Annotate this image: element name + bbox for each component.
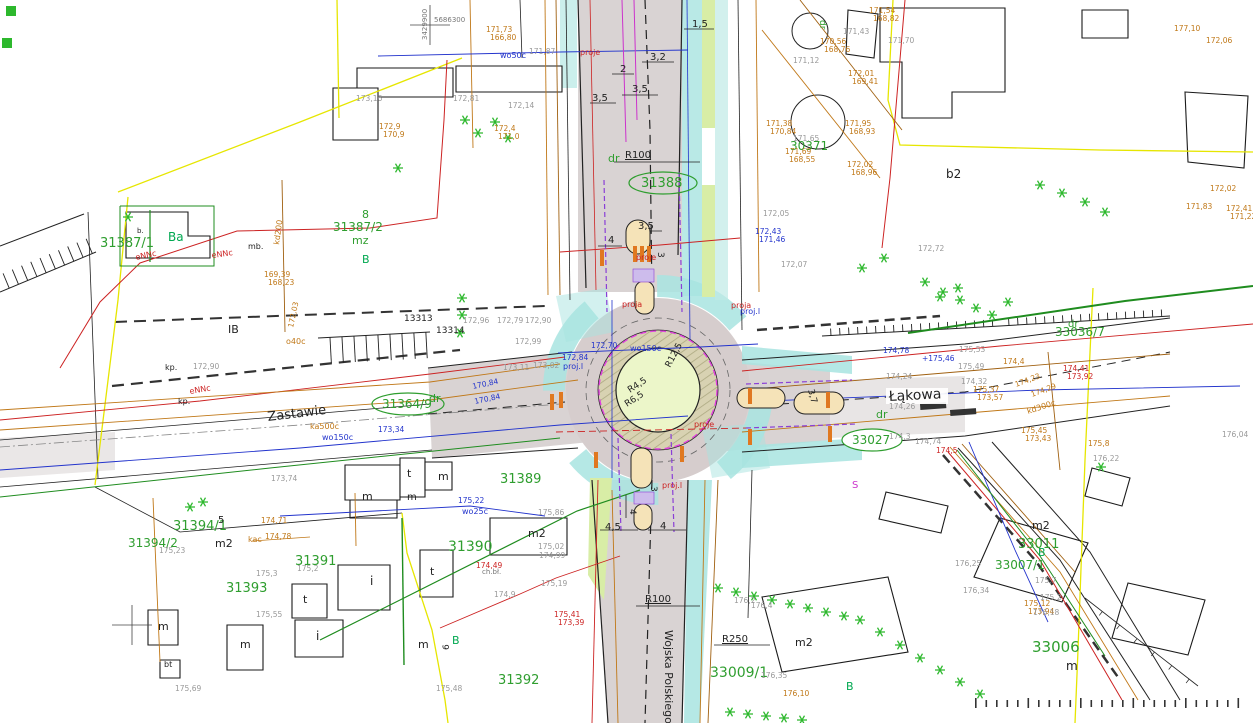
map-label: m2 xyxy=(795,636,813,649)
tick-mark xyxy=(22,266,28,281)
tick-mark xyxy=(49,254,55,269)
map-label: 172,79 xyxy=(497,316,523,325)
map-label: proje xyxy=(580,48,600,57)
map-label: 173,57 xyxy=(977,393,1003,402)
map-label: 172,05 xyxy=(763,209,789,218)
map-label: m2 xyxy=(528,527,546,540)
tree-icon xyxy=(743,710,753,719)
tree-icon xyxy=(797,716,807,723)
map-label: 33009/1 xyxy=(710,665,768,681)
map-label: 168,55 xyxy=(789,155,815,164)
map-label: kd300c xyxy=(1026,398,1057,416)
map-label: 172,06 xyxy=(1206,36,1232,45)
map-label: proj.l xyxy=(563,362,583,371)
map-label: 172,72 xyxy=(918,244,944,253)
tree-icon xyxy=(460,116,470,125)
tick-mark xyxy=(12,270,18,285)
map-label: R100 xyxy=(625,150,651,161)
map-label: 175,8 xyxy=(1088,439,1110,448)
utility-line xyxy=(280,506,545,516)
map-label: 174,9 xyxy=(494,590,516,599)
map-canvas: 31387/1Ba831387/2mzB3138831364/9dr313891… xyxy=(0,0,1253,723)
map-label: 175,55 xyxy=(256,610,282,619)
map-label: 174,26 xyxy=(889,402,915,411)
curb-marking xyxy=(680,446,684,462)
map-label: 171,83 xyxy=(1186,202,1212,211)
map-label: 176,35 xyxy=(761,671,787,680)
map-label: 169,41 xyxy=(852,77,878,86)
map-label: 173,16 xyxy=(356,94,382,103)
tree-icon xyxy=(953,284,963,293)
legend-tick xyxy=(1206,700,1208,707)
map-label: 168,93 xyxy=(849,127,875,136)
crossing-pad xyxy=(633,269,654,282)
legend-tick xyxy=(1059,700,1061,707)
legend-tick xyxy=(1227,700,1229,707)
map-label: 174,99 xyxy=(539,551,565,560)
map-label: 172,81 xyxy=(453,94,479,103)
map-label: 172,70 xyxy=(591,341,617,350)
tree-icon xyxy=(857,264,867,273)
map-label: 174,32 xyxy=(961,377,987,386)
map-label: 13314 xyxy=(436,326,465,336)
map-label: 172,96 xyxy=(463,316,489,325)
map-label: 175,53 xyxy=(959,345,985,354)
map-label: Ba xyxy=(168,230,184,244)
legend-tick xyxy=(1196,700,1198,707)
map-label: 176,18 xyxy=(1033,608,1059,617)
tree-icon xyxy=(920,278,930,287)
map-label: 168,76 xyxy=(824,45,850,54)
map-label: 175,2 xyxy=(297,564,319,573)
utility-line xyxy=(1048,352,1060,470)
tree-icon xyxy=(1003,298,1013,307)
map-label: mz xyxy=(352,234,369,247)
map-label: eNNc xyxy=(211,248,233,260)
map-label: 176,4 xyxy=(751,601,773,610)
map-label: dr xyxy=(429,392,441,405)
map-label: 5 xyxy=(218,515,224,526)
curb-marking xyxy=(826,392,830,408)
map-label: 172,07 xyxy=(781,260,807,269)
map-label: m xyxy=(1066,659,1078,673)
utility-line xyxy=(118,58,462,192)
tree-icon xyxy=(1057,189,1067,198)
area-fill xyxy=(715,0,728,300)
map-label: 4 xyxy=(627,509,637,515)
map-label: 175,2 xyxy=(1040,593,1062,602)
legend-tick xyxy=(1017,700,1019,707)
map-label: 3429900 xyxy=(421,9,429,40)
tick-mark xyxy=(58,250,64,265)
utility-line xyxy=(556,0,560,295)
map-label: 31387/1 xyxy=(100,236,154,251)
legend-tick xyxy=(1133,698,1135,708)
map-label: proja xyxy=(622,300,642,309)
map-label: proj.l xyxy=(662,481,682,490)
map-label: 3,5 xyxy=(592,93,608,104)
map-label: 172,99 xyxy=(515,337,541,346)
tree-icon xyxy=(185,503,195,512)
map-label: 3,5 xyxy=(632,84,648,95)
map-label: proje xyxy=(694,420,714,429)
map-label: m xyxy=(438,470,449,483)
tree-icon xyxy=(761,712,771,721)
map-label: 4 xyxy=(608,235,614,246)
map-label: 174,74 xyxy=(915,437,941,446)
map-label: 171,87 xyxy=(529,47,555,56)
tick-mark xyxy=(378,335,379,361)
map-label: kp. xyxy=(178,397,190,406)
map-label: 176,10 xyxy=(783,689,809,698)
building xyxy=(1085,468,1130,506)
map-label: i xyxy=(316,629,319,643)
legend-tick xyxy=(1175,700,1177,707)
curb-marking xyxy=(748,388,752,404)
legend-tick xyxy=(1154,700,1156,707)
map-label: 5686300 xyxy=(434,16,465,24)
tree-icon xyxy=(935,666,945,675)
legend-tick xyxy=(1185,698,1187,708)
map-label: kd200 xyxy=(272,219,284,245)
legend-tick xyxy=(975,698,977,708)
map-label: dr xyxy=(1068,319,1079,330)
map-label: Wojska Polskiego xyxy=(662,630,675,723)
map-label: 171,12 xyxy=(793,56,819,65)
map-label: R100 xyxy=(645,594,671,605)
map-label: 168,82 xyxy=(873,14,899,23)
area-fill xyxy=(684,480,712,723)
map-label: IB xyxy=(228,323,239,336)
legend-tick xyxy=(1101,700,1103,707)
map-label: 4,5 xyxy=(605,522,621,533)
map-label: 173,02 xyxy=(533,361,559,370)
map-label: 173,74 xyxy=(271,474,297,483)
pedestrian-island xyxy=(635,281,654,314)
map-label: m xyxy=(407,492,417,503)
map-label: o40c xyxy=(286,337,305,346)
map-label: 176,04 xyxy=(1222,430,1248,439)
map-label: 172,90 xyxy=(193,362,219,371)
legend-tick xyxy=(986,700,988,707)
tree-icon xyxy=(915,654,925,663)
tick-mark xyxy=(3,273,9,288)
map-label: 174,71 xyxy=(261,516,287,525)
map-label: 3 xyxy=(648,486,658,492)
map-label: 170,9 xyxy=(383,130,405,139)
curb-marking xyxy=(748,429,752,445)
map-label: 31390 xyxy=(448,539,493,555)
map-label: 1,5 xyxy=(692,19,708,30)
map-label: 175,19 xyxy=(541,579,567,588)
map-label: 168,23 xyxy=(268,278,294,287)
legend-tick xyxy=(996,700,998,707)
map-label: eNNc xyxy=(189,383,212,396)
map-label: 171,22 xyxy=(1230,212,1253,221)
map-label: 172,84 xyxy=(562,353,588,362)
utility-line xyxy=(822,316,1170,336)
pedestrian-island xyxy=(634,504,652,530)
map-label: 33036/7 xyxy=(1055,325,1105,339)
tree-icon xyxy=(779,714,789,723)
tick-mark xyxy=(68,246,74,261)
utility-line xyxy=(282,180,285,332)
tick-mark xyxy=(366,335,367,361)
pedestrian-island xyxy=(631,448,652,488)
building xyxy=(880,8,1005,118)
tree-icon xyxy=(457,294,467,303)
legend-tick xyxy=(1091,700,1093,707)
curb-marking xyxy=(600,250,604,266)
map-label: m xyxy=(362,490,373,503)
building xyxy=(762,577,908,672)
map-label: 175,48 xyxy=(436,684,462,693)
map-label: 175,23 xyxy=(159,546,185,555)
tree-icon xyxy=(879,254,889,263)
map-label: 6 xyxy=(442,644,452,650)
map-label: 175,02 xyxy=(538,542,564,551)
pedestrian-island xyxy=(737,388,785,408)
map-label: 174,23 xyxy=(1014,371,1042,389)
legend-tick xyxy=(1007,700,1009,707)
map-label: 31388 xyxy=(641,176,682,191)
map-label: wo50c xyxy=(500,51,526,60)
map-label: m2 xyxy=(1032,519,1050,532)
legend-tick xyxy=(1217,700,1219,707)
tree-icon xyxy=(725,708,735,717)
map-label: 31387/2 xyxy=(333,220,383,234)
map-label: 175,7 xyxy=(1035,576,1057,585)
map-label: B xyxy=(1038,546,1046,559)
utility-line xyxy=(318,332,430,338)
map-label: 173,43 xyxy=(1025,434,1051,443)
curb-marking xyxy=(559,392,563,408)
map-label: 174,4 xyxy=(1003,357,1025,366)
utility-line xyxy=(545,0,548,295)
tick-mark xyxy=(342,337,343,363)
building xyxy=(420,550,453,597)
map-label: R250 xyxy=(722,634,748,645)
legend-tick xyxy=(1112,700,1114,707)
map-label: kac xyxy=(248,535,262,544)
pedestrian-island xyxy=(794,392,844,414)
area-fill xyxy=(2,38,12,48)
tree-icon xyxy=(1035,181,1045,190)
building xyxy=(1082,10,1128,38)
map-label: 13313 xyxy=(404,314,433,324)
map-label: proje xyxy=(636,253,656,262)
map-label: wo150c xyxy=(630,344,661,353)
map-label: 3,5 xyxy=(638,221,654,232)
map-label: 173,34 xyxy=(378,425,404,434)
map-label: 31389 xyxy=(500,472,541,487)
map-label: b. xyxy=(137,227,144,235)
map-label: kp. xyxy=(165,363,177,372)
map-label: 4 xyxy=(660,521,666,532)
map-label: 172,14 xyxy=(508,101,534,110)
map-label: b2 xyxy=(946,167,961,181)
map-label: 172,03 xyxy=(286,301,300,329)
utility-line xyxy=(742,324,1253,371)
map-label: 174,49 xyxy=(476,561,502,570)
map-label: B xyxy=(846,680,854,693)
map-label: 175,3 xyxy=(256,569,278,578)
map-label: 175,49 xyxy=(958,362,984,371)
map-label: i xyxy=(370,574,373,588)
legend-tick xyxy=(1080,698,1082,708)
map-label: 171,70 xyxy=(888,36,914,45)
tree-icon xyxy=(473,129,483,138)
map-label: 171,46 xyxy=(759,235,785,244)
map-label: 3 xyxy=(655,252,665,258)
tree-icon xyxy=(731,588,741,597)
map-label: 31393 xyxy=(226,581,267,596)
legend-tick xyxy=(1143,700,1145,707)
map-label: mb. xyxy=(248,242,263,251)
legend-tick xyxy=(1238,698,1240,708)
map-label: +175,46 xyxy=(922,354,955,363)
legend-tick xyxy=(1038,700,1040,707)
map-label: 173,39 xyxy=(558,618,584,627)
map-label: 175,86 xyxy=(538,508,564,517)
map-label: m xyxy=(240,638,251,651)
legend-tick xyxy=(1049,700,1051,707)
map-label: m2 xyxy=(215,537,233,550)
curb-marking xyxy=(594,452,598,468)
area-fill xyxy=(6,6,16,16)
tick-mark xyxy=(330,337,331,363)
tree-icon xyxy=(1100,208,1110,217)
building xyxy=(338,565,390,610)
utility-line xyxy=(0,404,430,440)
building xyxy=(1112,583,1205,655)
building xyxy=(292,584,327,618)
map-label: 33007/1 xyxy=(995,558,1045,572)
map-label: t xyxy=(303,593,308,606)
map-label: B xyxy=(452,634,460,647)
curb-marking xyxy=(828,426,832,442)
map-label: 171,0 xyxy=(498,132,520,141)
tree-icon xyxy=(713,584,723,593)
map-label: 174,5 xyxy=(936,446,958,455)
map-label: 174,3 xyxy=(889,432,911,441)
map-label: 172,02 xyxy=(1210,184,1236,193)
map-label: 33027 xyxy=(852,433,890,447)
tick-mark xyxy=(31,262,37,277)
map-label: 176,34 xyxy=(963,586,989,595)
map-label: 174,78 xyxy=(265,532,291,541)
tick-mark xyxy=(354,336,355,362)
map-label: bt xyxy=(164,660,172,669)
curb-marking xyxy=(550,394,554,410)
legend-tick xyxy=(1164,700,1166,707)
map-label: 174,29 xyxy=(1030,381,1058,399)
tree-icon xyxy=(975,690,985,699)
map-label: S xyxy=(852,480,858,491)
map-label: wo150c xyxy=(322,433,353,442)
tree-icon xyxy=(198,498,208,507)
map-label: m xyxy=(158,620,169,633)
area-fill xyxy=(682,0,702,296)
map-label: m xyxy=(418,638,429,651)
map-label: dr xyxy=(817,20,827,30)
map-label: 171,43 xyxy=(843,27,869,36)
tree-icon xyxy=(955,296,965,305)
map-label: 31364/9 xyxy=(382,397,432,411)
utility-line xyxy=(0,252,96,292)
crossing-pad xyxy=(634,492,654,504)
utility-line xyxy=(0,214,84,246)
tree-icon xyxy=(987,311,997,320)
map-label: 172,90 xyxy=(525,316,551,325)
map-label: 177,10 xyxy=(1174,24,1200,33)
map-label: 174,78 xyxy=(883,346,909,355)
tree-icon xyxy=(1080,198,1090,207)
building xyxy=(879,492,948,533)
map-label: 168,96 xyxy=(851,168,877,177)
map-label: 33006 xyxy=(1032,638,1080,656)
building xyxy=(1185,92,1248,168)
tick-mark xyxy=(1186,679,1189,683)
utility-line xyxy=(402,518,404,665)
map-label: 166,80 xyxy=(490,33,516,42)
tree-icon xyxy=(393,164,403,173)
map-label: ka500c xyxy=(310,422,339,431)
tick-mark xyxy=(1099,612,1102,616)
map-label: 171,65 xyxy=(793,134,819,143)
map-label: 31392 xyxy=(498,673,539,688)
utility-line xyxy=(1075,288,1093,723)
tick-mark xyxy=(1169,666,1172,670)
map-label: t xyxy=(430,565,435,578)
map-label: 2 xyxy=(620,64,626,75)
utility-line xyxy=(520,0,522,58)
legend-tick xyxy=(1122,700,1124,707)
tree-icon xyxy=(971,304,981,313)
map-label: dr xyxy=(608,152,620,165)
map-label: wo25c xyxy=(462,507,488,516)
map-label: proj.l xyxy=(740,307,760,316)
map-label: 176,25 xyxy=(955,559,981,568)
utility-line xyxy=(738,0,742,330)
map-label: 175,69 xyxy=(175,684,201,693)
map-label: 3,2 xyxy=(650,52,666,63)
map-label: 176,22 xyxy=(1093,454,1119,463)
tick-mark xyxy=(390,334,391,360)
map-label: 175,22 xyxy=(458,496,484,505)
map-label: 174,24 xyxy=(886,372,912,381)
legend-tick xyxy=(1028,698,1030,708)
map-label: dr xyxy=(876,408,888,421)
map-label: t xyxy=(407,467,412,480)
tree-icon xyxy=(955,678,965,687)
legend-tick xyxy=(1070,700,1072,707)
utility-line xyxy=(756,0,759,292)
map-label: B xyxy=(362,253,370,266)
tick-mark xyxy=(77,243,83,258)
tick-mark xyxy=(40,258,46,273)
map-label: 173,11 xyxy=(503,363,529,372)
map-stage: 31387/1Ba831387/2mzB3138831364/9dr313891… xyxy=(0,0,1253,723)
map-label: 173,92 xyxy=(1067,372,1093,381)
